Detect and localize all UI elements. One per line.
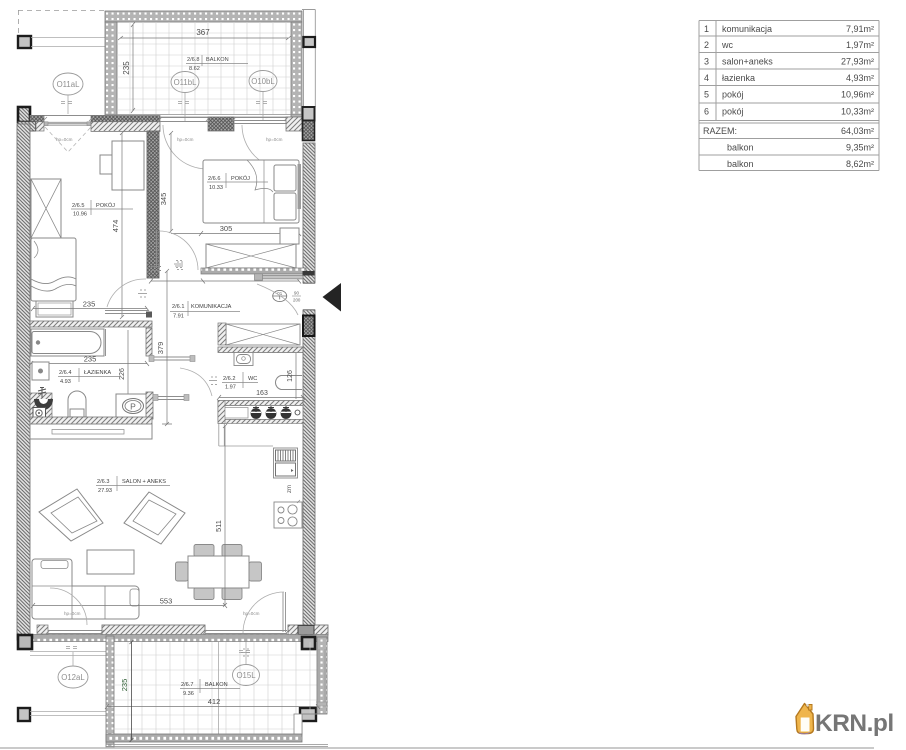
- svg-text:2/6.6: 2/6.6: [208, 176, 220, 182]
- svg-text:4: 4: [704, 73, 709, 83]
- svg-text:553: 553: [160, 597, 173, 606]
- svg-text:POKÓJ: POKÓJ: [231, 175, 250, 182]
- svg-text:SALON + ANEKS: SALON + ANEKS: [122, 479, 166, 485]
- svg-text:pokój: pokój: [722, 107, 744, 117]
- svg-text:O15L: O15L: [236, 671, 256, 680]
- svg-text:O12aL: O12aL: [61, 673, 85, 682]
- svg-text:zm: zm: [287, 485, 293, 493]
- svg-text:2/6.5: 2/6.5: [72, 203, 84, 209]
- svg-text:hp=0cm: hp=0cm: [266, 137, 283, 142]
- svg-text:235: 235: [83, 300, 96, 309]
- svg-text:90: 90: [294, 291, 299, 296]
- svg-text:pokój: pokój: [722, 90, 744, 100]
- svg-text:8,62m²: 8,62m²: [846, 159, 874, 169]
- svg-text:balkon: balkon: [727, 143, 754, 153]
- svg-text:3: 3: [704, 57, 709, 67]
- svg-text:2: 2: [704, 40, 709, 50]
- svg-text:9,35m²: 9,35m²: [846, 143, 874, 153]
- svg-text:RAZEM:: RAZEM:: [703, 126, 737, 136]
- svg-text:10,96m²: 10,96m²: [841, 90, 874, 100]
- svg-text:8.62: 8.62: [189, 66, 200, 72]
- svg-text:511: 511: [214, 520, 223, 532]
- svg-text:235: 235: [84, 355, 97, 364]
- svg-text:wc: wc: [721, 40, 733, 50]
- svg-text:2/6.7: 2/6.7: [181, 682, 193, 688]
- svg-text:O10bL: O10bL: [251, 77, 275, 86]
- svg-text:10,33m²: 10,33m²: [841, 107, 874, 117]
- svg-text:POKÓJ: POKÓJ: [96, 202, 115, 209]
- svg-text:305: 305: [220, 224, 233, 233]
- svg-text:O11bL: O11bL: [174, 78, 197, 87]
- svg-text:ŁAZIENKA: ŁAZIENKA: [84, 370, 111, 376]
- svg-text:WC: WC: [248, 376, 257, 382]
- svg-text:4,93m²: 4,93m²: [846, 73, 874, 83]
- svg-text:BALKON: BALKON: [206, 57, 229, 63]
- svg-text:KOMUNIKACJA: KOMUNIKACJA: [191, 304, 232, 310]
- svg-text:hp=0cm: hp=0cm: [56, 137, 73, 142]
- svg-text:235: 235: [122, 61, 131, 75]
- svg-text:1,97m²: 1,97m²: [846, 40, 874, 50]
- svg-text:379: 379: [156, 342, 165, 355]
- svg-text:200: 200: [293, 298, 301, 303]
- svg-text:5: 5: [704, 90, 709, 100]
- svg-text:2/6.3: 2/6.3: [97, 479, 109, 485]
- svg-text:komunikacja: komunikacja: [722, 24, 772, 34]
- svg-text:412: 412: [208, 697, 221, 706]
- svg-text:hp=0cm: hp=0cm: [64, 611, 81, 616]
- svg-text:367: 367: [196, 28, 210, 37]
- svg-text:2/6.2: 2/6.2: [223, 376, 235, 382]
- svg-text:2/6.1: 2/6.1: [172, 304, 184, 310]
- svg-text:27,93m²: 27,93m²: [841, 57, 874, 67]
- svg-text:226: 226: [119, 368, 126, 380]
- svg-text:126: 126: [287, 370, 294, 382]
- svg-text:27.93: 27.93: [98, 488, 112, 494]
- svg-text:salon+aneks: salon+aneks: [722, 57, 773, 67]
- svg-text:10.96: 10.96: [73, 212, 87, 218]
- svg-text:163: 163: [256, 390, 268, 397]
- svg-text:1.97: 1.97: [225, 385, 236, 391]
- svg-text:10.33: 10.33: [209, 185, 223, 191]
- svg-text:345: 345: [159, 193, 168, 206]
- svg-text:2/6.8: 2/6.8: [187, 57, 199, 63]
- svg-text:474: 474: [111, 220, 120, 233]
- svg-text:6: 6: [704, 107, 709, 117]
- svg-text:O11aL: O11aL: [57, 80, 80, 89]
- svg-text:4.93: 4.93: [60, 379, 71, 385]
- svg-text:2/6.4: 2/6.4: [59, 370, 71, 376]
- svg-text:BALKON: BALKON: [205, 682, 228, 688]
- svg-text:1: 1: [704, 24, 709, 34]
- svg-text:łazienka: łazienka: [722, 73, 755, 83]
- svg-text:hp=0cm: hp=0cm: [177, 137, 194, 142]
- svg-text:hp=0cm: hp=0cm: [243, 611, 260, 616]
- svg-text:64,03m²: 64,03m²: [841, 126, 874, 136]
- svg-text:7,91m²: 7,91m²: [846, 24, 874, 34]
- svg-text:7.91: 7.91: [173, 314, 184, 320]
- svg-text:P: P: [130, 402, 136, 412]
- svg-text:KRN.pl: KRN.pl: [815, 710, 894, 737]
- svg-text:235: 235: [120, 679, 129, 692]
- svg-text:balkon: balkon: [727, 159, 754, 169]
- svg-text:9.36: 9.36: [183, 691, 194, 697]
